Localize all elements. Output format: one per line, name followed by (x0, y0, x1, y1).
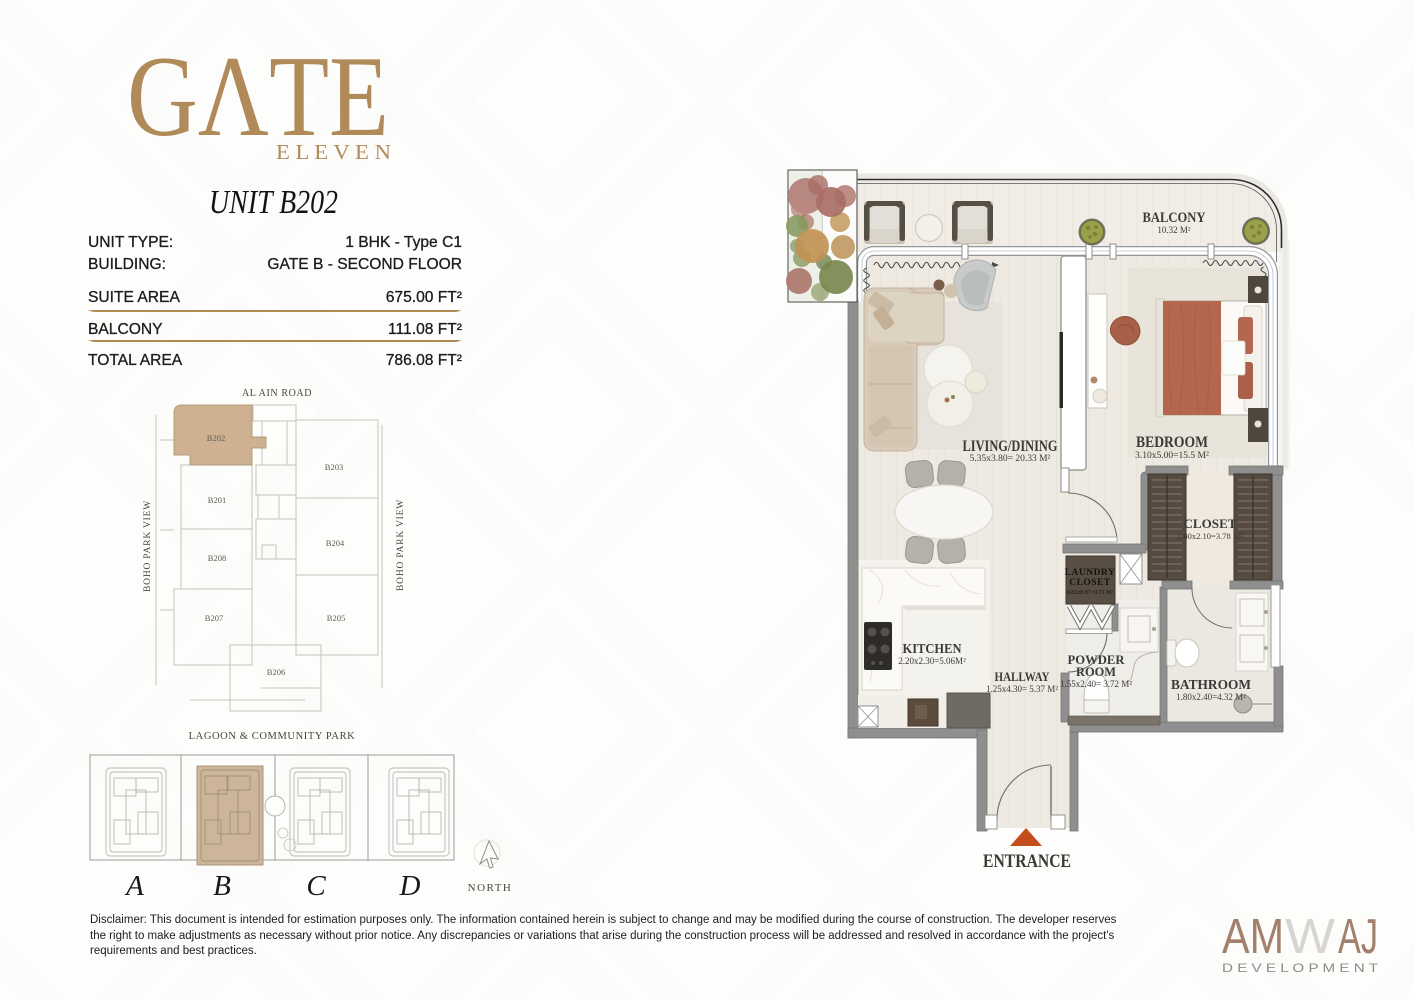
svg-text:3.10x5.00=15.5 M²: 3.10x5.00=15.5 M² (1135, 451, 1209, 461)
svg-text:NORTH: NORTH (468, 882, 513, 894)
svg-text:ENTRANCE: ENTRANCE (983, 852, 1071, 872)
svg-text:B207: B207 (205, 613, 223, 623)
svg-text:C: C (306, 870, 326, 902)
svg-text:B201: B201 (208, 495, 226, 505)
svg-text:W: W (1285, 910, 1336, 964)
svg-text:BOHO PARK VIEW: BOHO PARK VIEW (396, 499, 406, 591)
svg-text:2.20x2.30=5.06M²: 2.20x2.30=5.06M² (898, 656, 966, 666)
svg-text:1.80x2.40=4.32 M²: 1.80x2.40=4.32 M² (1176, 692, 1246, 702)
svg-text:ROOM: ROOM (1076, 664, 1116, 679)
svg-text:BALCONY: BALCONY (1143, 210, 1206, 226)
svg-text:CLOSET: CLOSET (1069, 578, 1111, 588)
svg-text:BOHO PARK VIEW: BOHO PARK VIEW (143, 500, 153, 592)
svg-text:0.82x0.87=0.71 M²: 0.82x0.87=0.71 M² (1067, 590, 1114, 596)
svg-text:1.80x2.10=3.78 M²: 1.80x2.10=3.78 M² (1177, 531, 1243, 541)
svg-text:B203: B203 (325, 462, 343, 472)
svg-text:LAGOON & COMMUNITY PARK: LAGOON & COMMUNITY PARK (189, 731, 356, 742)
svg-text:A: A (124, 870, 144, 902)
svg-text:BEDROOM: BEDROOM (1136, 434, 1208, 451)
svg-text:KITCHEN: KITCHEN (903, 642, 962, 657)
svg-text:B205: B205 (327, 613, 345, 623)
svg-text:10.32 M²: 10.32 M² (1157, 225, 1191, 235)
svg-text:1.25x4.30= 5.37 M²: 1.25x4.30= 5.37 M² (986, 684, 1058, 694)
svg-text:B202: B202 (207, 433, 225, 443)
svg-text:AL AIN ROAD: AL AIN ROAD (242, 388, 312, 399)
svg-text:B204: B204 (326, 538, 345, 548)
svg-text:D E V E L O P M E N T: D E V E L O P M E N T (1222, 961, 1379, 975)
svg-text:AM: AM (1222, 910, 1284, 964)
svg-text:B: B (213, 870, 231, 902)
svg-text:LAUNDRY: LAUNDRY (1065, 568, 1116, 578)
svg-text:B208: B208 (208, 553, 226, 563)
svg-text:LIVING/DINING: LIVING/DINING (963, 438, 1058, 455)
svg-text:D: D (399, 870, 421, 902)
svg-text:HALLWAY: HALLWAY (995, 669, 1051, 684)
svg-text:5.35x3.80= 20.33 M²: 5.35x3.80= 20.33 M² (970, 454, 1051, 464)
svg-text:AJ: AJ (1338, 910, 1378, 964)
svg-text:B206: B206 (267, 667, 285, 677)
svg-text:1.55x2.40= 3.72 M²: 1.55x2.40= 3.72 M² (1060, 679, 1132, 689)
svg-text:CLOSET: CLOSET (1184, 516, 1237, 531)
svg-text:BATHROOM: BATHROOM (1171, 678, 1251, 693)
